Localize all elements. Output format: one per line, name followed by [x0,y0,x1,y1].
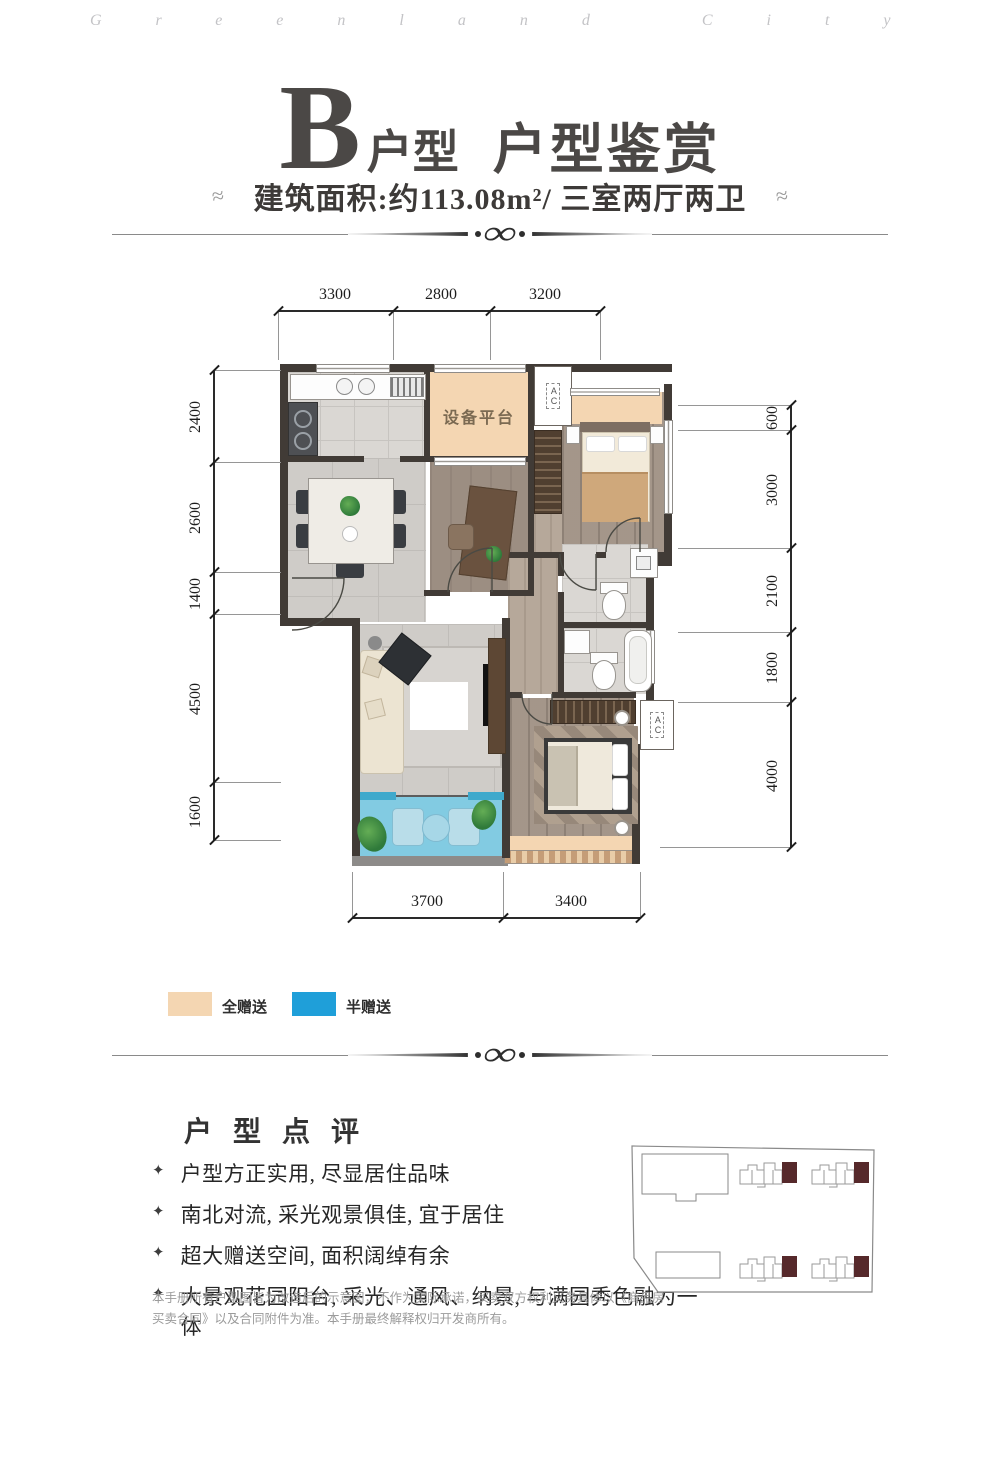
dim-label-bottom-0: 3700 [395,893,459,911]
legend-swatch-full-gift [168,992,212,1016]
swirl-ornament-left-icon [209,182,225,210]
unit-type-label: 户型 [367,116,459,182]
dim-line-left [213,370,215,840]
dim-label-top-0: 3300 [303,286,367,304]
dim-label-right-2: 2100 [764,559,782,623]
swirl-ornament-right-icon [774,182,790,210]
legend-label-full-gift: 全赠送 [222,996,267,1017]
review-bullet-text: 户型方正实用, 尽显居住品味 [181,1158,451,1188]
dim-label-left-1: 2600 [187,486,205,550]
highlighted-unit [854,1256,869,1277]
subtitle-row: 建筑面积:约113.08m²/ 三室两厅两卫 [0,174,1000,218]
dim-line-bottom [352,917,640,919]
dim-label-top-2: 3200 [513,286,577,304]
brochure-page: Greenland City B 户型 户型鉴赏 建筑面积:约113.08m²/… [0,0,1000,1477]
title-text: 户型鉴赏 [493,105,721,184]
watermark-text: Greenland City [90,12,950,30]
dim-label-left-3: 4500 [187,667,205,731]
site-plan [622,1140,894,1304]
dim-label-right-3: 1800 [764,636,782,700]
dim-label-right-1: 3000 [764,458,782,522]
dim-label-right-0: 600 [764,386,782,450]
dim-label-right-4: 4000 [764,744,782,808]
highlighted-unit [854,1162,869,1183]
ornamental-divider-bottom [112,1047,888,1063]
ornamental-divider-top [112,226,888,242]
dim-label-left-0: 2400 [187,385,205,449]
legend-label-half-gift: 半赠送 [346,996,391,1017]
dim-label-left-2: 1400 [187,562,205,626]
dim-line-top [278,310,600,312]
door-arcs [280,360,680,880]
page-title: B 户型 户型鉴赏 [0,74,1000,184]
review-bullet-text: 南北对流, 采光观景俱佳, 宜于居住 [181,1199,505,1229]
legend-swatch-half-gift [292,992,336,1016]
dim-label-bottom-1: 3400 [539,893,603,911]
dim-label-top-1: 2800 [409,286,473,304]
review-bullet-text: 超大赠送空间, 面积阔绰有余 [181,1240,451,1270]
review-heading: 户 型 点 评 [184,1110,366,1150]
highlighted-unit [782,1162,797,1183]
disclaimer-text: 本手册所有户型图皆为改造后的示意图，不作为实际承诺，买卖双方权利义务具体以《商品… [152,1288,668,1329]
unit-letter: B [279,74,360,181]
dim-line-right [790,405,792,848]
highlighted-unit [782,1256,797,1277]
dim-label-left-4: 1600 [187,780,205,844]
area-subtitle: 建筑面积:约113.08m²/ 三室两厅两卫 [254,174,747,218]
